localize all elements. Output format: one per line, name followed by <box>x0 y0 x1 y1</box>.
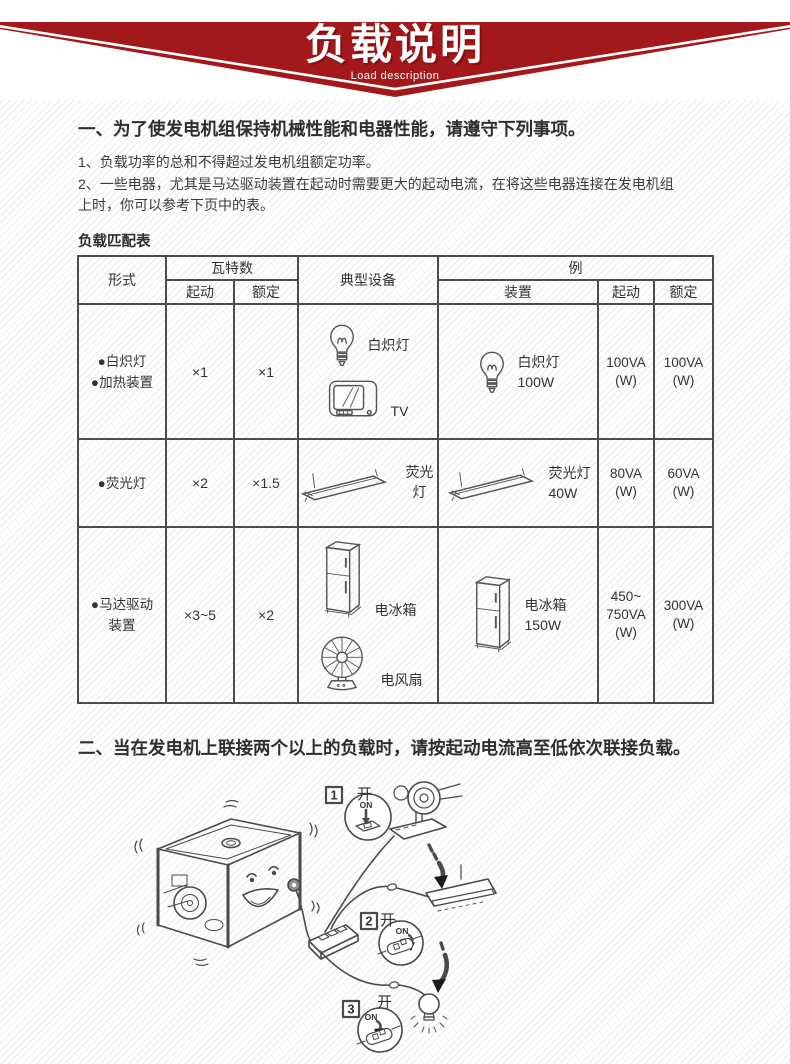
row3-example-line1: 电冰箱 <box>525 597 567 613</box>
row3-typical-label-2: 电风扇 <box>381 670 423 692</box>
header-example-start: 起动 <box>598 280 654 304</box>
row1-type-line1: ●白炽灯 <box>98 354 147 369</box>
refrigerator-icon <box>470 573 514 657</box>
row2-rated: ×1.5 <box>234 439 298 527</box>
sequence-arrow-1 <box>429 845 448 889</box>
fluorescent-tube-icon <box>299 468 391 504</box>
row1-example-line1: 白炽灯 <box>518 354 560 370</box>
row3-type: ●马达驱动 装置 <box>78 527 166 703</box>
row1-typical-label-1: 白炽灯 <box>368 335 410 355</box>
row3-example-device: 电冰箱 150W <box>438 527 598 703</box>
tv-icon <box>328 377 380 421</box>
row2-example-line1: 荧光灯 <box>549 465 591 481</box>
row2-example-device: 荧光灯 40W <box>438 439 598 527</box>
row3-example-rated: 300VA (W) <box>654 527 713 703</box>
row3-example-start: 450~ 750VA (W) <box>598 527 654 703</box>
row2-example-start: 80VA (W) <box>598 439 654 527</box>
banner: 负载说明 Load description <box>0 0 790 100</box>
row1-example-rated: 100VA (W) <box>654 304 713 439</box>
row1-type-line2: ●加热装置 <box>91 375 153 390</box>
load-table-caption: 负载匹配表 <box>78 230 151 251</box>
row2-type: ●荧光灯 <box>78 439 166 527</box>
incandescent-bulb-icon <box>477 350 507 394</box>
switch-label-2: 开 <box>380 912 395 929</box>
header-wattage: 瓦特数 <box>166 256 298 280</box>
power-strip-drawing <box>309 925 358 959</box>
row1-typical: 白炽灯 TV <box>298 304 438 439</box>
section-two-heading: 二、当在发电机上联接两个以上的负载时，请按起动电流高至低依次联接负载。 <box>78 735 691 760</box>
row3-typical: 电冰箱 <box>298 527 438 703</box>
row2-example-rated: 60VA (W) <box>654 439 713 527</box>
row1-example-start: 100VA (W) <box>598 304 654 439</box>
table-row: ●马达驱动 装置 ×3~5 ×2 <box>78 527 713 703</box>
banner-title: 负载说明 <box>0 24 790 66</box>
row3-rated: ×2 <box>234 527 298 703</box>
generator-drawing <box>135 801 319 966</box>
row2-example-line2: 40W <box>549 485 578 501</box>
section-one-item-1: 1、负载功率的总和不得超过发电机组额定功率。 <box>78 152 678 174</box>
section-one-item-2: 2、一些电器，尤其是马达驱动装置在起动时需要更大的起动电流，在将这些电器连接在发… <box>78 174 678 217</box>
sequence-arrow-2 <box>432 943 447 993</box>
row1-example-line2: 100W <box>518 374 555 390</box>
header-example-rated: 额定 <box>654 280 713 304</box>
row3-start: ×3~5 <box>166 527 234 703</box>
refrigerator-icon <box>320 538 364 622</box>
header-device: 装置 <box>438 280 598 304</box>
fan-icon <box>314 632 370 692</box>
header-start: 起动 <box>166 280 234 304</box>
header-example: 例 <box>438 256 713 280</box>
row1-type: ●白炽灯 ●加热装置 <box>78 304 166 439</box>
table-row: ●荧光灯 ×2 ×1.5 荧光灯 <box>78 439 713 527</box>
row1-typical-label-2: TV <box>391 403 409 421</box>
on-label-1: ON <box>360 800 373 810</box>
row3-typical-label-1: 电冰箱 <box>375 600 417 622</box>
load-match-table: 形式 瓦特数 典型设备 例 起动 额定 装置 起动 额定 ●白炽灯 ●加热装置 … <box>77 255 714 704</box>
generator-cable <box>296 890 312 943</box>
row1-rated: ×1 <box>234 304 298 439</box>
row2-start: ×2 <box>166 439 234 527</box>
motor-tool-drawing <box>390 782 462 839</box>
row1-start: ×1 <box>166 304 234 439</box>
incandescent-bulb-icon <box>327 323 357 367</box>
connection-order-illustration: 1 开 ON 2 开 ON 3 开 ON <box>128 773 513 1063</box>
step-number-2: 2 <box>365 914 372 929</box>
banner-subtitle: Load description <box>0 70 790 82</box>
row2-typical-label: 荧光灯 <box>402 462 437 504</box>
ceiling-light-drawing <box>426 865 496 911</box>
header-typical-device: 典型设备 <box>298 256 438 304</box>
header-type: 形式 <box>78 256 166 304</box>
section-one-heading: 一、为了使发电机组保持机械性能和电器性能，请遵守下列事项。 <box>78 116 586 141</box>
step-number-3: 3 <box>347 1002 354 1017</box>
switch-label-3: 开 <box>377 994 392 1011</box>
on-label-2: ON <box>396 926 409 936</box>
row3-example-line2: 150W <box>525 617 562 633</box>
row1-example-device: 白炽灯 100W <box>438 304 598 439</box>
step-number-1: 1 <box>330 788 337 803</box>
fluorescent-tube-icon <box>446 467 538 503</box>
section-one-body: 1、负载功率的总和不得超过发电机组额定功率。 2、一些电器，尤其是马达驱动装置在… <box>78 152 678 217</box>
table-row: ●白炽灯 ●加热装置 ×1 ×1 <box>78 304 713 439</box>
header-rated: 额定 <box>234 280 298 304</box>
bulb-drawing <box>411 994 447 1033</box>
row2-typical: 荧光灯 <box>298 439 438 527</box>
on-label-3: ON <box>365 1012 378 1022</box>
